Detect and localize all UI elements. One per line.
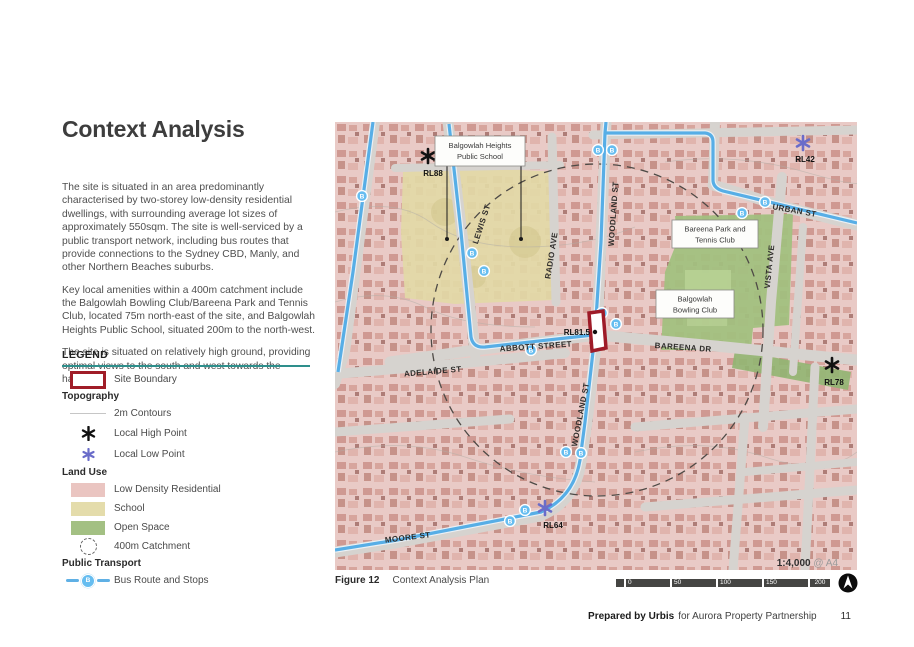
page-title: Context Analysis xyxy=(62,116,245,143)
open-space-swatch xyxy=(71,521,105,535)
legend-title: LEGEND xyxy=(62,349,310,361)
residential-swatch xyxy=(71,483,105,497)
scale-tick: 100 xyxy=(718,579,762,587)
bus-stop-icon: B xyxy=(579,450,584,457)
prepared-by: Prepared by Urbis xyxy=(588,611,674,622)
bus-stop-icon: B xyxy=(81,574,95,588)
high-point-icon xyxy=(81,426,96,441)
legend-section-land-use: Land Use xyxy=(62,465,310,480)
bus-stop-icon: B xyxy=(360,193,365,200)
marker-label-rl64: RL64 xyxy=(543,521,563,530)
legend-item-bus: B Bus Route and Stops xyxy=(62,571,310,590)
park-callout: Bareena Park and Tennis Club xyxy=(672,220,758,248)
bus-stop-icon: B xyxy=(482,268,487,275)
site-boundary-swatch xyxy=(70,371,106,389)
scale-bar: 0 50 100 150 200 xyxy=(616,573,868,593)
legend-label: Low Density Residential xyxy=(114,484,221,495)
bus-stop-icon: B xyxy=(508,518,513,525)
legend-item-school: School xyxy=(62,499,310,518)
context-analysis-map: B B B B B B B B B B B B B B RL81.5 RL88 xyxy=(335,122,857,570)
scale-tick: 200 xyxy=(810,579,830,587)
prepared-for: for Aurora Property Partnership xyxy=(678,611,816,622)
park-label-line2: Tennis Club xyxy=(695,236,735,245)
site-boundary xyxy=(589,311,606,351)
legend-item-residential: Low Density Residential xyxy=(62,480,310,499)
page-number: 11 xyxy=(841,611,851,622)
bus-stop-icon: B xyxy=(596,147,601,154)
school-label-line1: Balgowlah Heights xyxy=(449,141,512,150)
school-label-line2: Public School xyxy=(457,152,503,161)
legend-label: 400m Catchment xyxy=(114,541,190,552)
bus-stop-icon: B xyxy=(564,449,569,456)
paragraph-1: The site is situated in an area predomin… xyxy=(62,181,320,275)
figure-title: Context Analysis Plan xyxy=(392,575,489,586)
figure-caption: Figure 12 Context Analysis Plan xyxy=(335,575,489,586)
marker-label-rl78: RL78 xyxy=(824,378,844,387)
bus-stop-icon: B xyxy=(614,321,619,328)
school-swatch xyxy=(71,502,105,516)
scale-tick: 150 xyxy=(764,579,808,587)
bus-route-icon: B xyxy=(66,574,110,588)
bus-stop-icon: B xyxy=(763,199,768,206)
marker-label-rl42: RL42 xyxy=(795,155,815,164)
park-label-line1: Bareena Park and xyxy=(684,225,745,234)
low-point-icon xyxy=(82,448,95,461)
legend-item-open-space: Open Space xyxy=(62,518,310,537)
legend-label: 2m Contours xyxy=(114,408,171,419)
marker-label-rl81-5: RL81.5 xyxy=(564,328,591,337)
bus-stop-icon: B xyxy=(610,147,615,154)
scale-ratio: 1:4,000 @ A4 xyxy=(616,558,838,569)
bus-stop-icon: B xyxy=(470,250,475,257)
legend-section-public-transport: Public Transport xyxy=(62,556,310,571)
contour-line-icon xyxy=(70,413,106,414)
paragraph-2: Key local amenities within a 400m catchm… xyxy=(62,284,320,338)
bowling-callout: Balgowlah Bowling Club xyxy=(656,290,734,318)
legend-label: Open Space xyxy=(114,522,170,533)
scale-tick: 0 xyxy=(626,579,670,587)
scale-ratio-value: 1:4,000 xyxy=(777,558,811,569)
legend-item-catchment: 400m Catchment xyxy=(62,537,310,556)
legend-item-low-point: Local Low Point xyxy=(62,444,310,465)
bowling-label-line1: Balgowlah xyxy=(677,295,712,304)
legend-item-contours: 2m Contours xyxy=(62,404,310,423)
bowling-label-line2: Bowling Club xyxy=(673,306,717,315)
legend-item-high-point: Local High Point xyxy=(62,423,310,444)
north-arrow-icon xyxy=(838,573,858,593)
scale-sheet-size: @ A4 xyxy=(813,558,838,569)
site-high-point-dot xyxy=(593,330,597,334)
marker-label-rl88: RL88 xyxy=(423,169,443,178)
catchment-circle-icon xyxy=(80,538,97,555)
scale-area: 1:4,000 @ A4 0 50 100 150 200 xyxy=(616,558,868,593)
legend-item-site-boundary: Site Boundary xyxy=(62,370,310,389)
legend: LEGEND Site Boundary Topography 2m Conto… xyxy=(62,349,310,590)
legend-section-topography: Topography xyxy=(62,389,310,404)
legend-label: Bus Route and Stops xyxy=(114,575,209,586)
legend-label: School xyxy=(114,503,145,514)
page-footer: Prepared by Urbis for Aurora Property Pa… xyxy=(588,611,851,622)
bus-stop-icon: B xyxy=(740,210,745,217)
figure-number: Figure 12 xyxy=(335,575,379,586)
legend-label: Local Low Point xyxy=(114,449,185,460)
legend-divider xyxy=(62,365,310,367)
scale-tick: 50 xyxy=(672,579,716,587)
scale-bar-cap xyxy=(616,579,624,587)
legend-label: Site Boundary xyxy=(114,374,177,385)
legend-label: Local High Point xyxy=(114,428,187,439)
bus-stop-icon: B xyxy=(523,507,528,514)
